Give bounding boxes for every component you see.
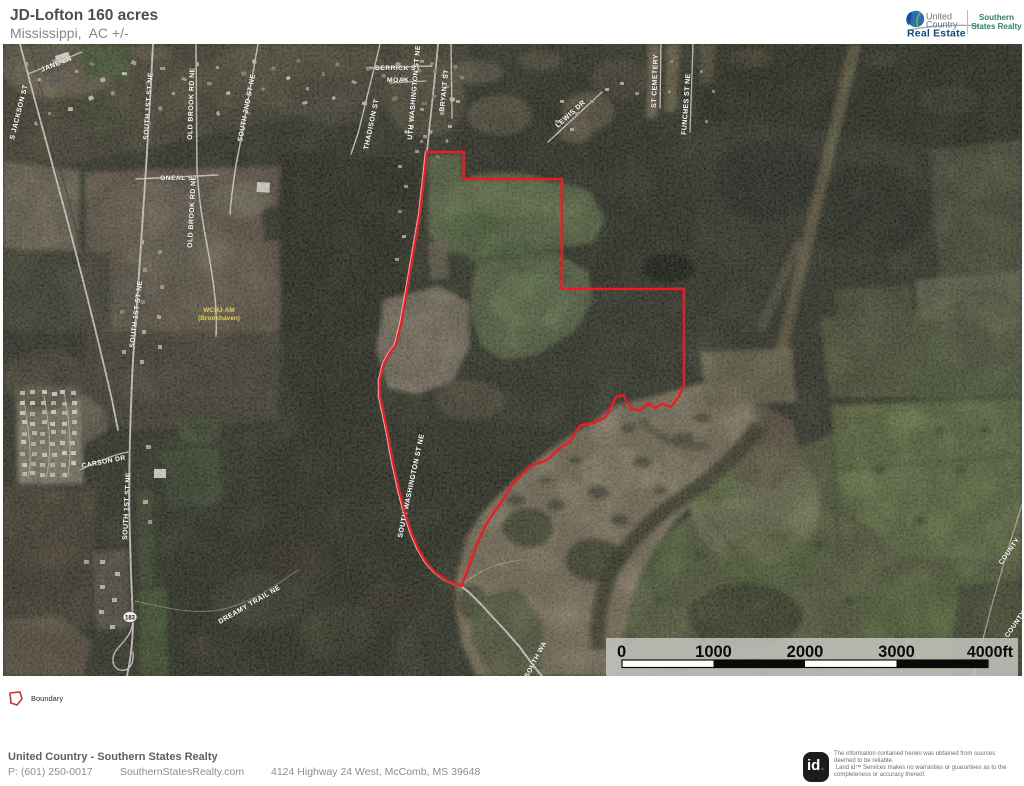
svg-text:183: 183 — [125, 616, 136, 622]
svg-text:(Brookhaven): (Brookhaven) — [198, 315, 240, 322]
svg-text:3000: 3000 — [878, 643, 915, 661]
svg-text:Real Estate: Real Estate — [907, 28, 966, 39]
svg-text:WCHJ-AM: WCHJ-AM — [203, 307, 234, 314]
svg-text:1000: 1000 — [695, 643, 732, 661]
svg-text:4000ft: 4000ft — [967, 644, 1014, 661]
svg-text:0: 0 — [617, 643, 626, 661]
svg-text:MOAK: MOAK — [387, 77, 409, 84]
svg-text:2000: 2000 — [787, 643, 824, 661]
